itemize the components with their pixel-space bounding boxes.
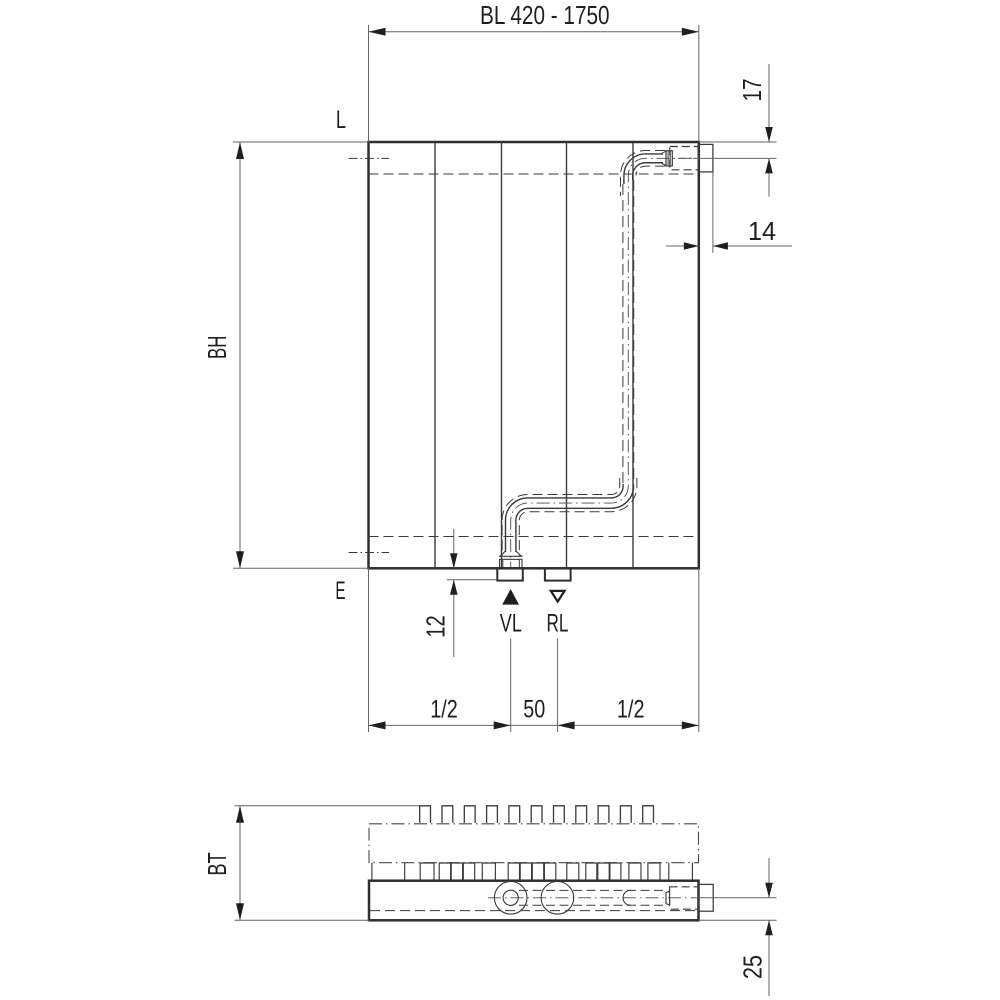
svg-text:14: 14 [748,216,776,246]
svg-text:17: 17 [737,78,767,101]
svg-text:E: E [335,577,345,605]
svg-text:12: 12 [421,615,451,638]
svg-text:BH: BH [202,336,232,359]
svg-text:L: L [336,106,346,134]
svg-text:RL: RL [547,610,569,638]
svg-text:1/2: 1/2 [617,696,645,724]
svg-text:50: 50 [523,696,545,724]
svg-text:VL: VL [500,610,522,638]
svg-text:BT: BT [202,852,232,875]
svg-text:BL 420 - 1750: BL 420 - 1750 [480,0,610,30]
svg-text:25: 25 [738,955,768,979]
svg-text:1/2: 1/2 [430,696,458,724]
